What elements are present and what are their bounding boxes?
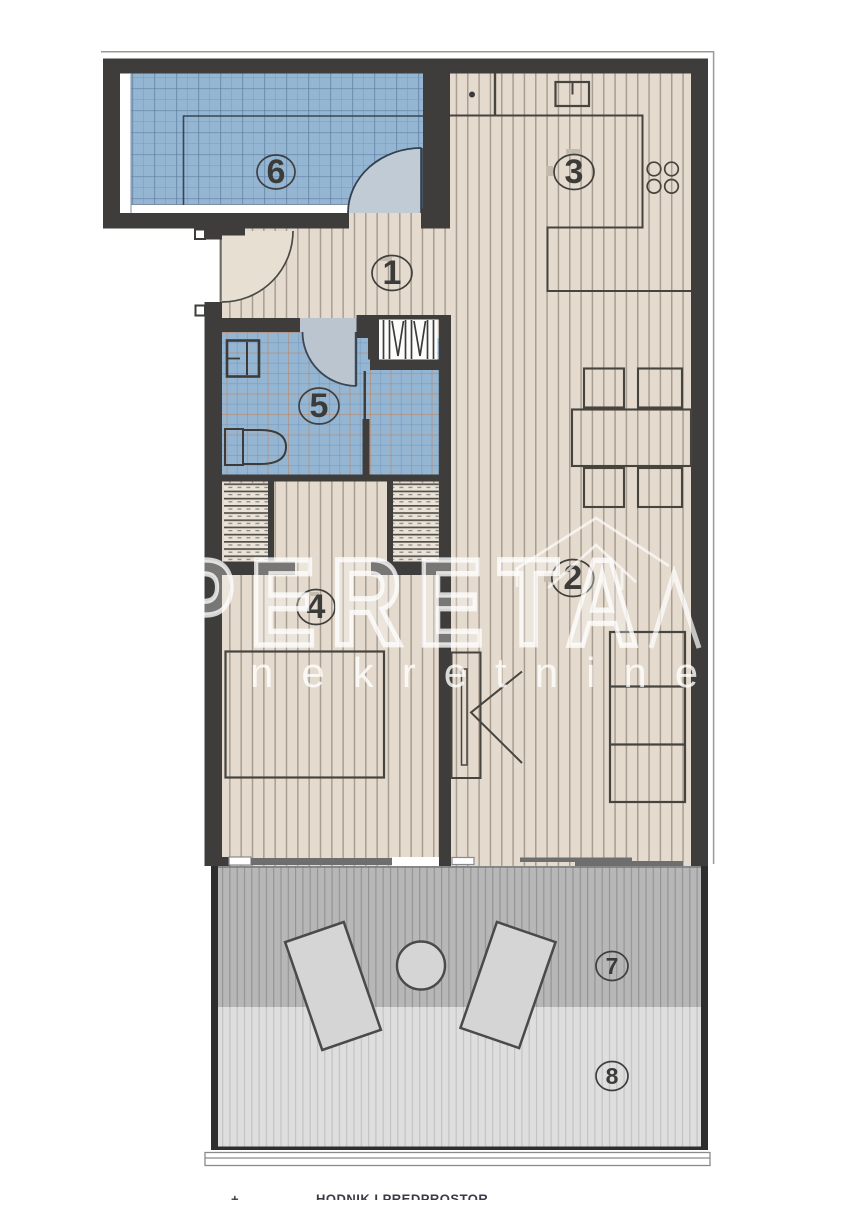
svg-text:5: 5 [310,387,329,425]
svg-text:HODNIK I PREDPROSTOR: HODNIK I PREDPROSTOR [316,1192,488,1201]
svg-text:7: 7 [606,953,619,979]
svg-text:+: + [231,1192,239,1201]
svg-text:6: 6 [267,153,286,191]
svg-text:1: 1 [383,254,402,292]
svg-text:nekretnine: nekretnine [250,649,726,696]
svg-text:8: 8 [606,1063,619,1089]
svg-text:3: 3 [565,153,584,191]
